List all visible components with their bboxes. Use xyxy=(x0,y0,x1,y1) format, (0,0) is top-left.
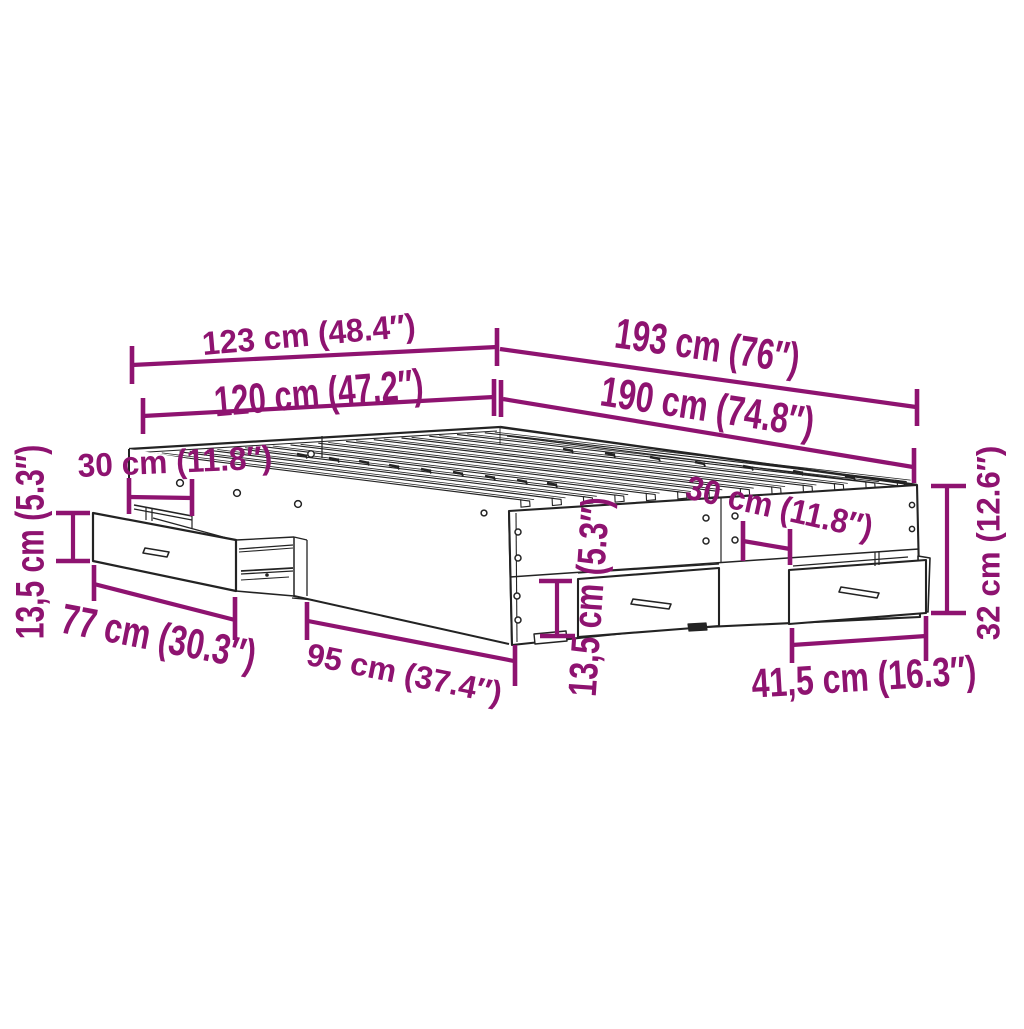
svg-text:13,5 cm (5.3″): 13,5 cm (5.3″) xyxy=(8,445,52,639)
svg-text:32 cm (12.6″): 32 cm (12.6″) xyxy=(970,446,1006,641)
